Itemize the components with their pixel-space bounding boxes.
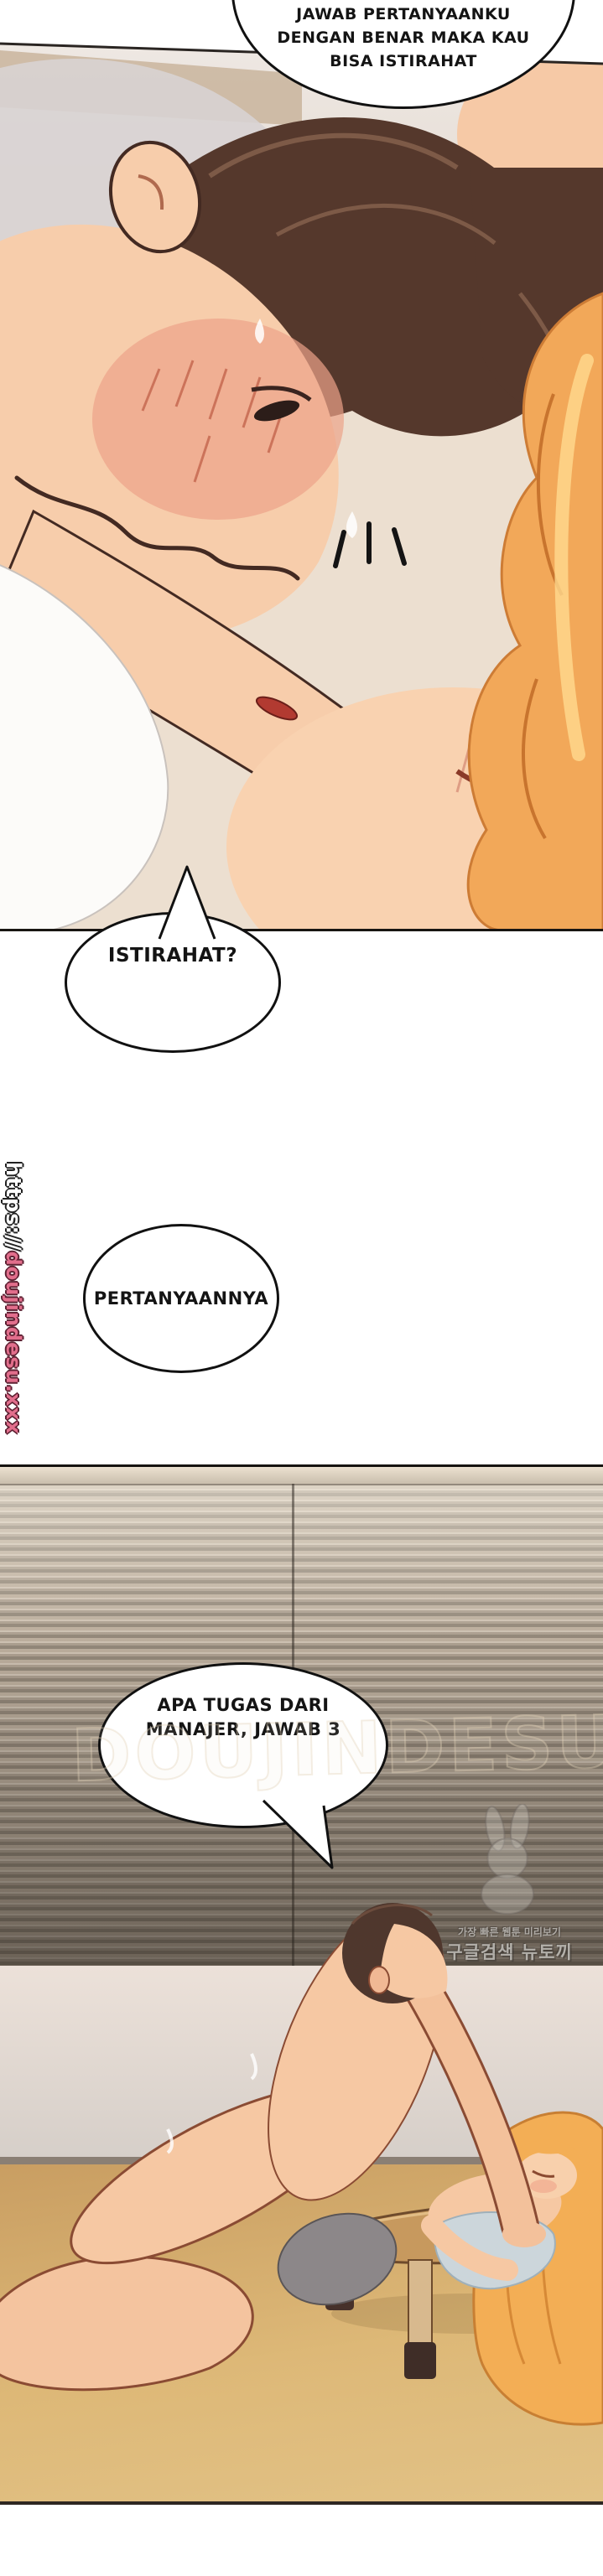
speech-line: APA TUGAS DARI: [101, 1693, 386, 1718]
speech-line: MANAJER, JAWAB 3: [101, 1718, 386, 1742]
bubble-tail-up: [149, 862, 233, 942]
panel1-artwork: [0, 42, 603, 930]
speech-line: JAWAB PERTANYAANKU: [234, 3, 573, 26]
speech-text: JAWAB PERTANYAANKU DENGAN BENAR MAKA KAU…: [234, 3, 573, 73]
panel1-bottom-border: [0, 929, 603, 931]
bottom-margin: [0, 2505, 603, 2576]
panel2-figures-svg: [0, 1467, 603, 2501]
speech-bubble-pertanyaannya: PERTANYAANNYA: [83, 1224, 279, 1373]
speech-text: ISTIRAHAT?: [67, 945, 278, 967]
speech-line: DENGAN BENAR MAKA KAU: [234, 26, 573, 49]
watermark-site: doujindesu.xxx: [2, 1252, 25, 1435]
speech-text: PERTANYAANNYA: [86, 1288, 277, 1309]
site-url-watermark: https://doujindesu.xxx: [3, 1162, 23, 1434]
speech-text: APA TUGAS DARI MANAJER, JAWAB 3: [101, 1693, 386, 1742]
webtoon-page: JAWAB PERTANYAANKU DENGAN BENAR MAKA KAU…: [0, 0, 603, 2576]
panel2-artwork: [0, 1464, 603, 2505]
bubble-tail-down: [252, 1796, 352, 1873]
watermark-protocol: https://: [2, 1162, 25, 1252]
panel1-art-svg: [0, 42, 603, 930]
speech-line: BISA ISTIRAHAT: [234, 49, 573, 73]
